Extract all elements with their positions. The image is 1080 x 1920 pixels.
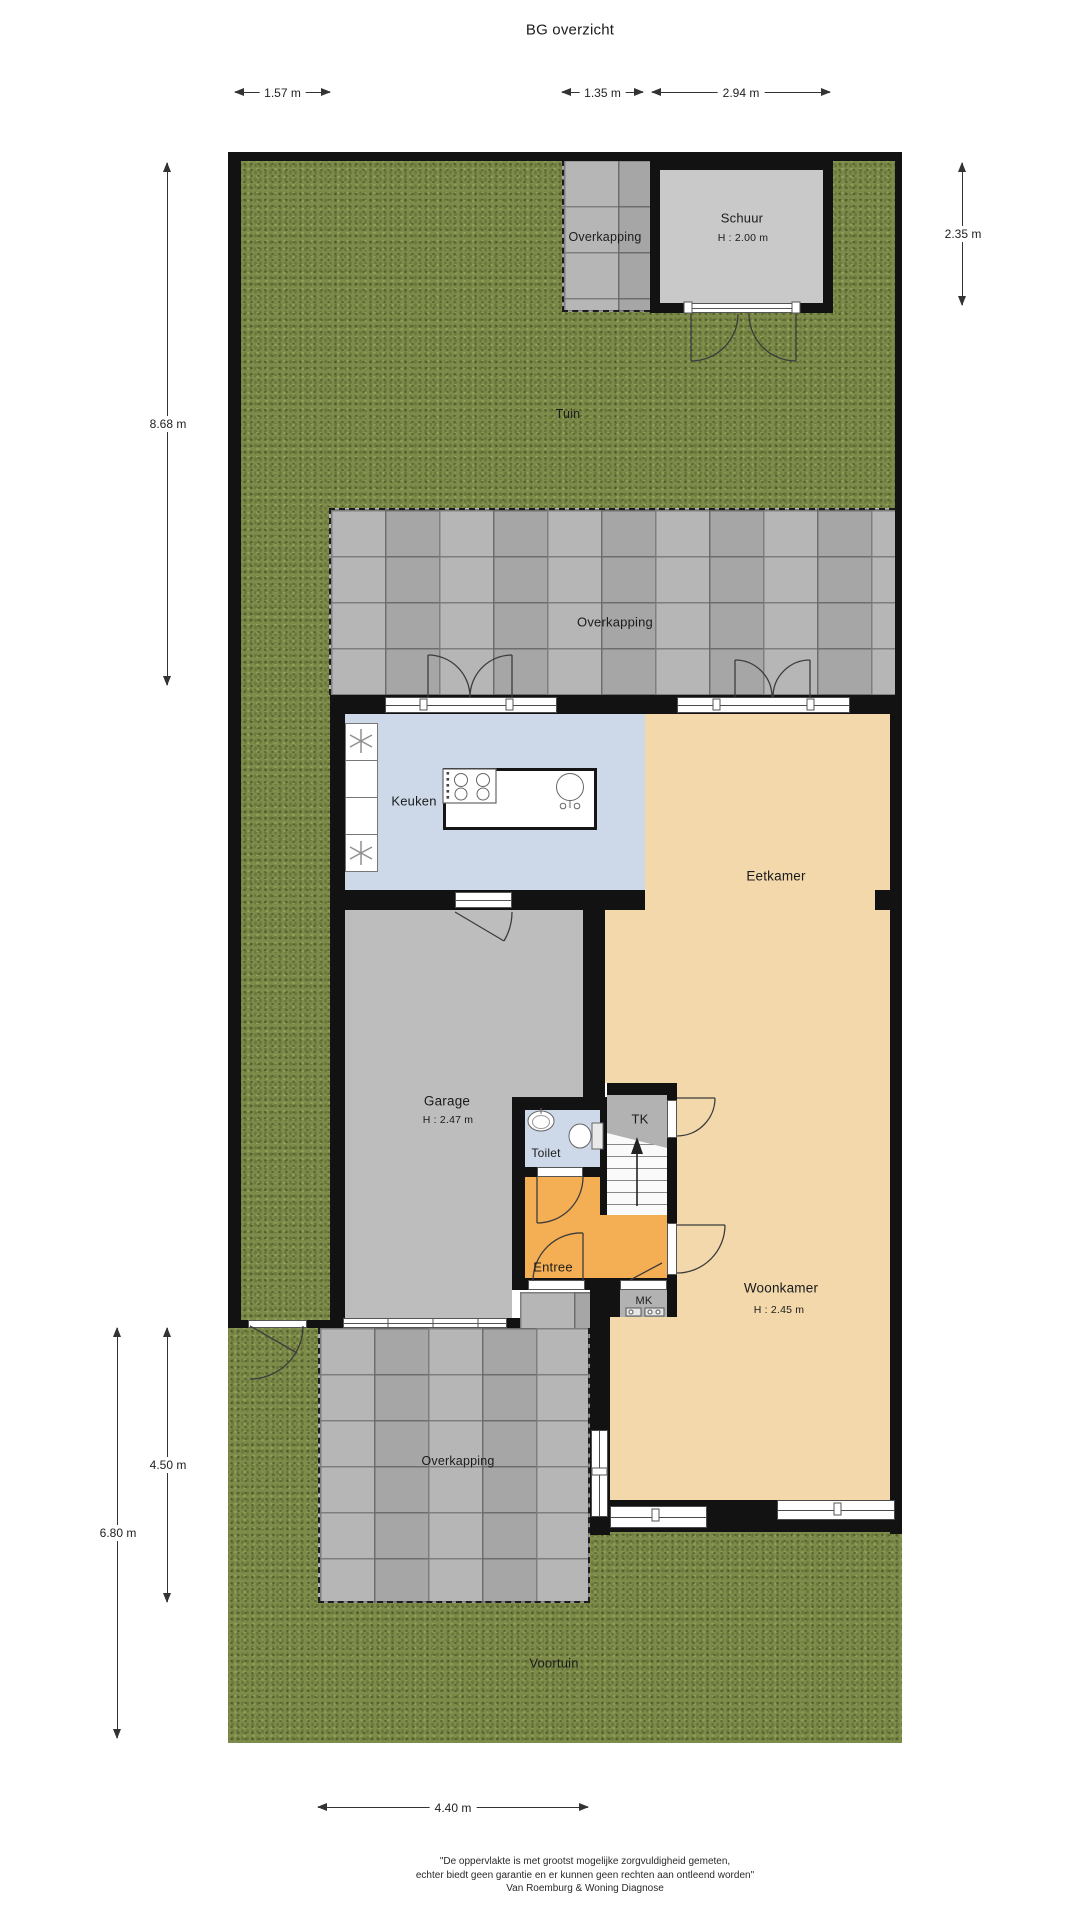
livingroom-left-window <box>591 1430 608 1517</box>
dimension-bottom: 4.40 m <box>318 1807 588 1808</box>
disclaimer-line: echter biedt geen garantie en er kunnen … <box>265 1869 905 1883</box>
toilet-door-sill <box>537 1167 583 1177</box>
dimension-top-mid: 1.35 m <box>562 92 643 93</box>
entree-left-wall <box>512 1097 525 1290</box>
toilet-top-wall <box>512 1097 607 1110</box>
dimension-left-frontgarden: 6.80 m <box>117 1328 118 1738</box>
disclaimer: "De oppervlakte is met grootst mogelijke… <box>265 1855 905 1896</box>
label-overkapping-front: Overkapping <box>421 1454 494 1468</box>
boundary-wall-right <box>895 152 902 714</box>
livingroom-bottom-window-right <box>777 1500 895 1520</box>
tk-door-sill <box>667 1100 677 1138</box>
label-woonkamer: Woonkamer <box>744 1281 818 1296</box>
kitchen-garage-door-sill <box>455 892 512 908</box>
label-overkapping-top: Overkapping <box>568 230 641 244</box>
boundary-wall-left <box>228 152 241 1328</box>
tk-right-wall-b <box>667 1138 677 1223</box>
garage-floor-upper <box>345 910 583 1100</box>
house-wall-left <box>330 695 345 1328</box>
label-garage: Garage <box>424 1094 470 1109</box>
disclaimer-line: "De oppervlakte is met grootst mogelijke… <box>265 1855 905 1869</box>
tk-right-wall-a <box>667 1083 677 1100</box>
house-wall-right <box>890 714 902 1534</box>
label-tuin: Tuin <box>556 407 581 421</box>
kitchen-top-window <box>385 697 557 713</box>
page-title: BG overzicht <box>526 22 614 39</box>
dimension-top-right: 2.94 m <box>652 92 830 93</box>
stairs-left-wall <box>600 1097 607 1215</box>
kitchen-island <box>443 768 597 830</box>
livingroom-bottom-window-left <box>610 1506 707 1528</box>
overkapping-mid-paving <box>329 508 895 695</box>
garage-floor-lower <box>345 1100 512 1318</box>
dimension-top-left: 1.57 m <box>235 92 330 93</box>
front-door-sill <box>528 1280 585 1290</box>
garage-door-band <box>343 1318 507 1328</box>
label-schuur: Schuur <box>721 211 763 226</box>
label-mk: MK <box>636 1295 653 1307</box>
dimension-left-garden: 8.68 m <box>167 163 168 685</box>
disclaimer-line: Van Roemburg & Woning Diagnose <box>265 1882 905 1896</box>
garage-right-wall <box>583 900 605 1100</box>
kitchen-counter <box>345 723 378 872</box>
dimension-right-shed: 2.35 m <box>962 163 963 305</box>
boundary-wall-top <box>228 152 902 161</box>
floorplan-page: BG overzicht <box>0 0 1080 1920</box>
gate-sill <box>248 1320 307 1328</box>
mk-corner-wall <box>590 1290 620 1317</box>
label-garage-height: H : 2.47 m <box>423 1114 473 1126</box>
mk-door-sill <box>620 1280 667 1290</box>
dining-jog-wall <box>875 890 902 910</box>
label-eetkamer: Eetkamer <box>746 869 805 884</box>
dining-top-window <box>677 697 850 713</box>
label-overkapping-mid: Overkapping <box>577 615 653 630</box>
label-schuur-height: H : 2.00 m <box>718 232 768 244</box>
label-entree: Entree <box>533 1260 573 1275</box>
label-voortuin: Voortuin <box>529 1656 578 1671</box>
dimension-left-overkapping: 4.50 m <box>167 1328 168 1602</box>
side-garden-strip <box>241 695 330 1320</box>
overkapping-front-paving-upper <box>520 1292 590 1328</box>
label-tk: TK <box>631 1112 648 1127</box>
label-keuken: Keuken <box>391 794 436 809</box>
shed-door-sill <box>689 303 797 313</box>
label-woonkamer-height: H : 2.45 m <box>754 1304 804 1316</box>
livingroom-door-sill <box>667 1223 677 1275</box>
label-toilet: Toilet <box>531 1146 560 1160</box>
